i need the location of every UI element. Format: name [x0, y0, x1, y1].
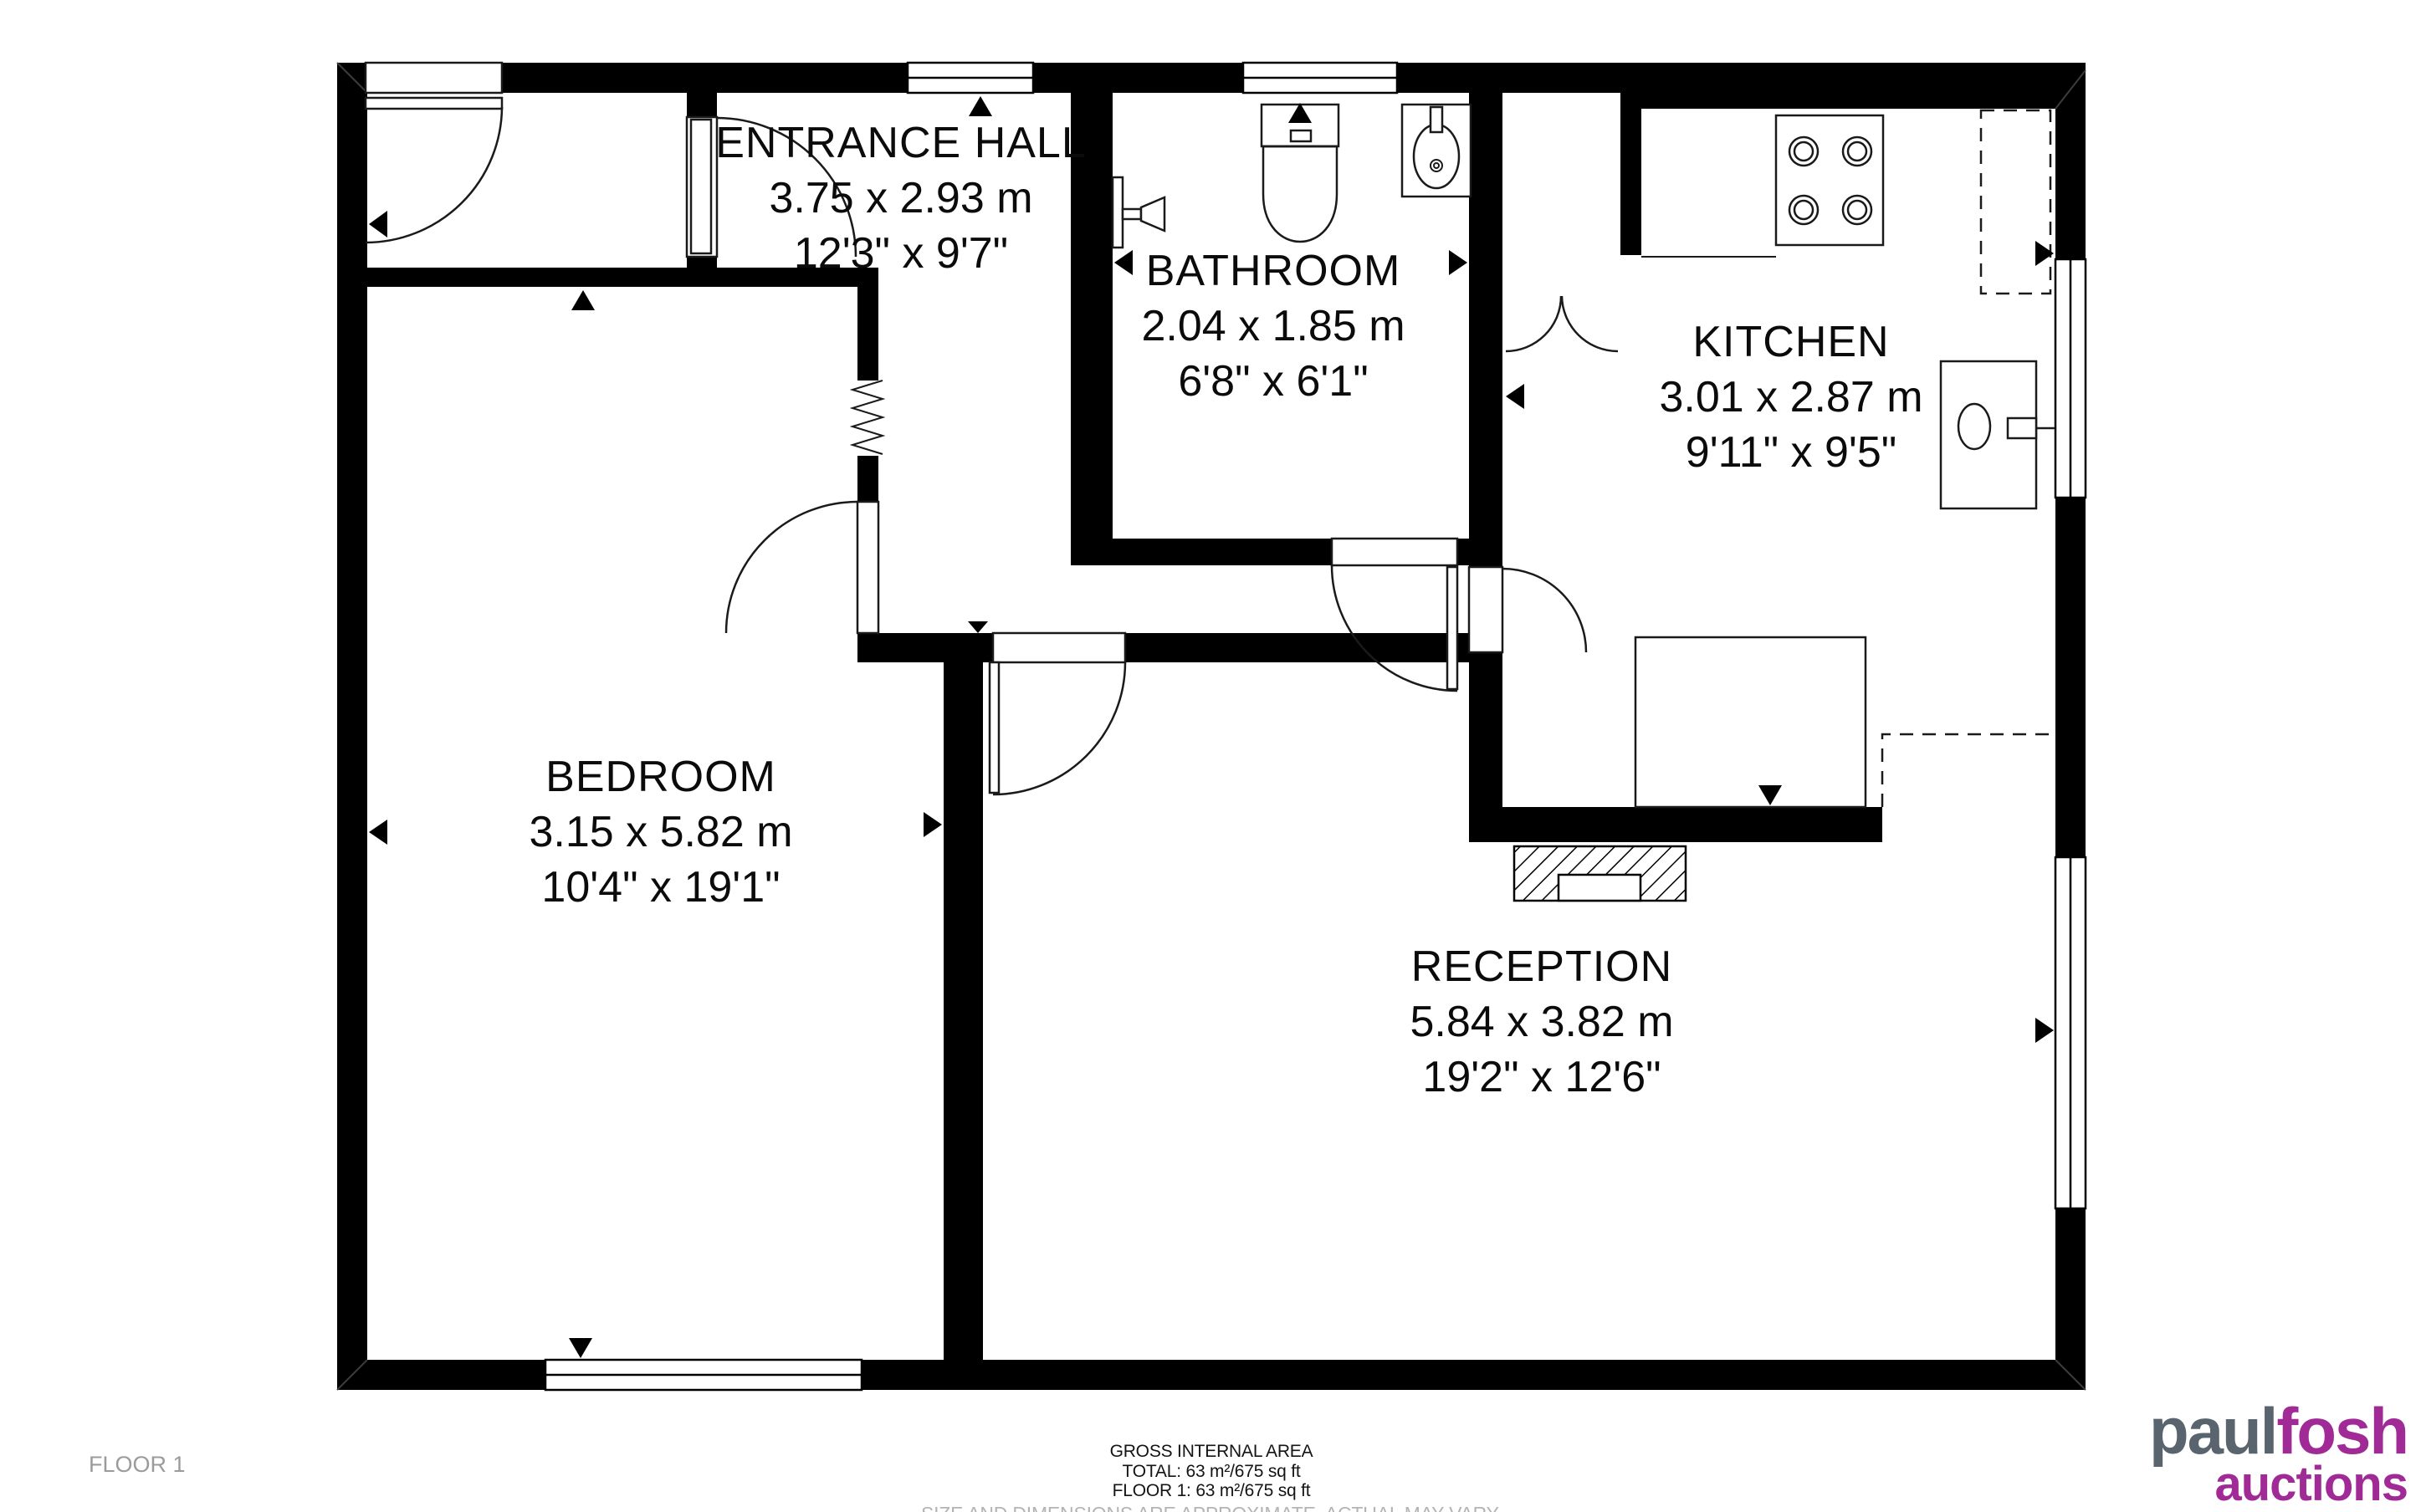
bedroom-window	[545, 1360, 862, 1390]
direction-marker	[1506, 384, 1524, 409]
direction-marker	[969, 96, 992, 116]
direction-marker	[924, 812, 942, 837]
room-label-bedroom: BEDROOM 3.15 x 5.82 m 10'4" x 19'1"	[529, 749, 792, 915]
area-total: TOTAL: 63 m²/675 sq ft	[921, 1462, 1502, 1482]
direction-marker	[369, 211, 387, 238]
room-size-metric: 5.84 x 3.82 m	[1410, 994, 1673, 1050]
room-label-kitchen: KITCHEN 3.01 x 2.87 m 9'11" x 9'5"	[1659, 314, 1922, 480]
bathroom-basin	[1402, 105, 1471, 197]
room-name: ENTRANCE HALL	[715, 115, 1087, 171]
logo-auctions: auctions	[2149, 1462, 2408, 1506]
direction-marker	[571, 290, 595, 310]
room-size-imperial: 19'2" x 12'6"	[1410, 1050, 1673, 1105]
room-size-imperial: 12'3" x 9'7"	[715, 226, 1087, 281]
openplan-dashed-line	[1882, 734, 2055, 807]
chimney-breast	[1514, 846, 1686, 901]
area-disclaimer: SIZE AND DIMENSIONS ARE APPROXIMATE, ACT…	[921, 1503, 1502, 1512]
bathroom-window	[1243, 63, 1397, 93]
direction-marker	[1114, 250, 1133, 275]
kitchen-sink	[1941, 361, 2055, 508]
bedroom-door	[726, 502, 878, 633]
area-title: GROSS INTERNAL AREA	[921, 1442, 1502, 1462]
room-size-imperial: 10'4" x 19'1"	[529, 860, 792, 915]
room-label-reception: RECEPTION 5.84 x 3.82 m 19'2" x 12'6"	[1410, 939, 1673, 1105]
direction-marker	[2035, 1018, 2054, 1043]
direction-marker	[1449, 250, 1467, 275]
cupboard-bifold-doors	[1506, 296, 1618, 351]
room-name: KITCHEN	[1659, 314, 1922, 370]
bathroom-door	[1332, 539, 1457, 691]
paulfosh-logo: paulfosh auctions	[2149, 1402, 2408, 1506]
stove	[1776, 115, 1883, 245]
reception-window	[2055, 857, 2086, 1208]
wall-tap-fitting	[1113, 177, 1164, 248]
direction-marker	[369, 820, 387, 845]
room-name: BATHROOM	[1141, 243, 1405, 299]
direction-marker	[569, 1338, 592, 1358]
area-floor1: FLOOR 1: 63 m²/675 sq ft	[921, 1481, 1502, 1501]
room-size-metric: 3.75 x 2.93 m	[715, 171, 1087, 226]
kitchen-door	[1469, 567, 1586, 652]
room-label-bathroom: BATHROOM 2.04 x 1.85 m 6'8" x 6'1"	[1141, 243, 1405, 409]
floorplan-drawing	[0, 0, 2421, 1512]
kitchen-table	[1635, 637, 1866, 807]
room-size-imperial: 9'11" x 9'5"	[1659, 425, 1922, 480]
room-name: RECEPTION	[1410, 939, 1673, 994]
toilet	[1262, 105, 1338, 242]
room-label-entrance-hall: ENTRANCE HALL 3.75 x 2.93 m 12'3" x 9'7"	[715, 115, 1087, 281]
logo-wordmark: paulfosh	[2149, 1402, 2408, 1462]
direction-marker	[968, 621, 988, 633]
room-size-imperial: 6'8" x 6'1"	[1141, 354, 1405, 409]
radiator-zigzag	[852, 381, 883, 454]
hall-window	[908, 63, 1033, 93]
gross-internal-area-block: GROSS INTERNAL AREA TOTAL: 63 m²/675 sq …	[921, 1442, 1502, 1512]
room-size-metric: 2.04 x 1.85 m	[1141, 299, 1405, 354]
appliance-space-dashed	[1981, 110, 2050, 294]
room-size-metric: 3.15 x 5.82 m	[529, 805, 792, 860]
kitchen-window	[2055, 259, 2086, 498]
floorplan-page: ENTRANCE HALL 3.75 x 2.93 m 12'3" x 9'7"…	[0, 0, 2421, 1512]
reception-door	[990, 633, 1125, 794]
room-size-metric: 3.01 x 2.87 m	[1659, 370, 1922, 425]
floor-tag: FLOOR 1	[89, 1452, 186, 1478]
room-name: BEDROOM	[529, 749, 792, 805]
